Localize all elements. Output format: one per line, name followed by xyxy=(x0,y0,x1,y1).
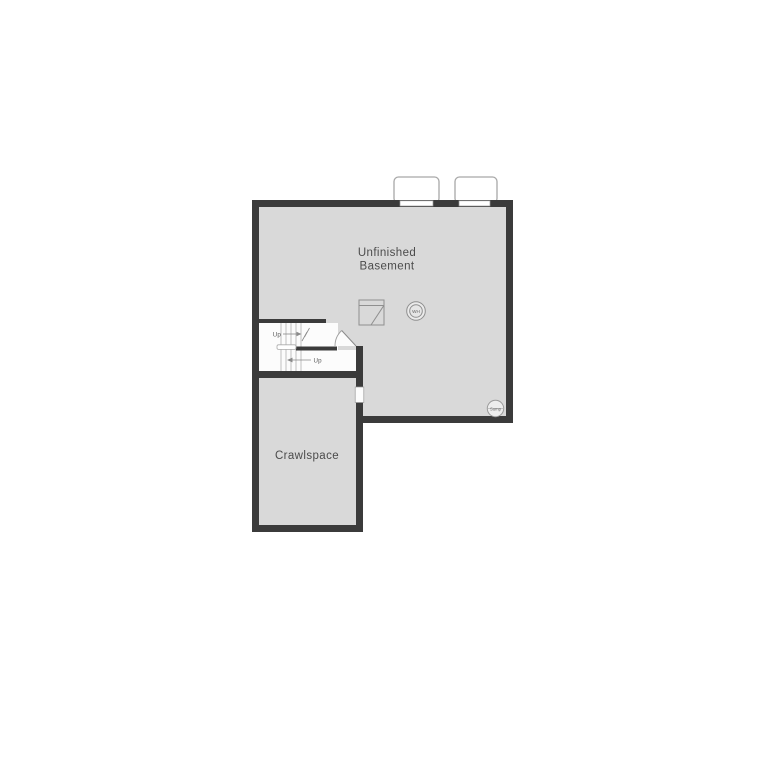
wall-stair-mid xyxy=(296,347,337,351)
wall-basement-bottom xyxy=(356,416,513,423)
stair-handrail xyxy=(277,345,296,350)
crawlspace-access-opening xyxy=(355,387,364,403)
window-icon xyxy=(459,201,490,206)
basement-label-line2: Basement xyxy=(360,261,415,273)
crawlspace-label: Crawlspace xyxy=(275,450,339,462)
wall-left xyxy=(252,200,259,532)
window-icon xyxy=(400,201,433,206)
stairs-up-label-bottom: Up xyxy=(314,357,323,364)
floor-plan-drawing: WH Sump Unfinished Basement Crawlspace U… xyxy=(0,0,768,768)
wall-stair-stub xyxy=(256,319,326,323)
sump-pump-label: Sump xyxy=(490,406,502,411)
floor-plan-canvas: WH Sump Unfinished Basement Crawlspace U… xyxy=(0,0,768,768)
basement-label-line1: Unfinished xyxy=(358,247,416,259)
stairs-up-label-top: Up xyxy=(273,331,282,338)
window-well-icon xyxy=(394,177,439,203)
window-well-icon xyxy=(455,177,497,203)
wall-crawlspace-bottom xyxy=(252,525,363,532)
wall-crawlspace-top xyxy=(252,371,363,378)
water-heater-label: WH xyxy=(412,309,420,314)
wall-right xyxy=(506,200,513,423)
